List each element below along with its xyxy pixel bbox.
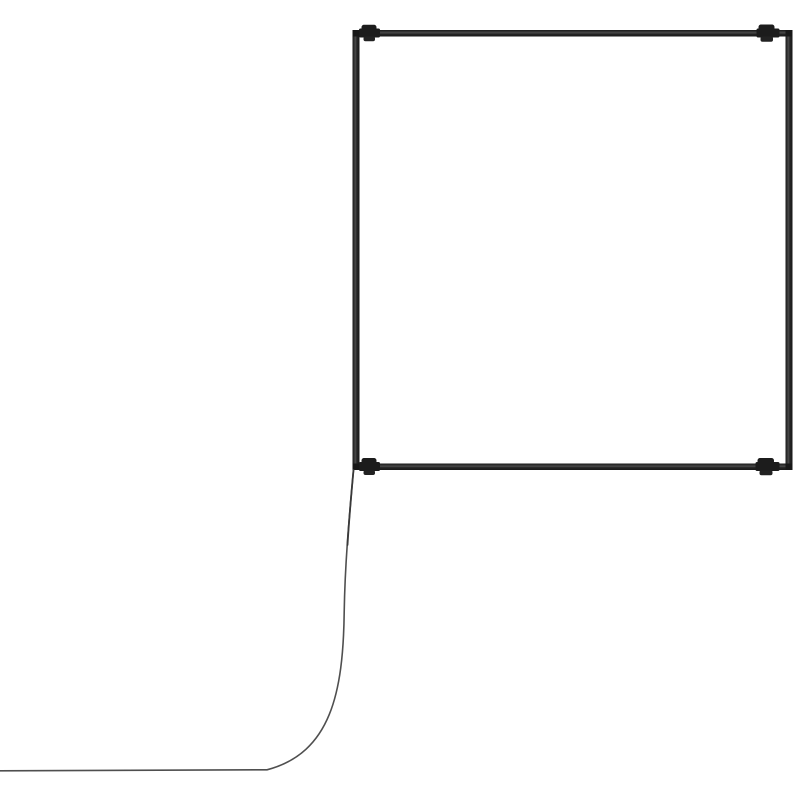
connector-lower-lug [761,37,774,42]
corner-connector-bottom-right [756,458,780,475]
product-render [0,0,800,800]
connector-lower-lug [364,37,376,42]
corner-connector-bottom-left [359,458,380,475]
power-cable-exit-segment [348,470,354,545]
connector-upper-lug [362,25,377,31]
frame-corner-bottom-left [353,464,360,471]
power-cable [0,470,354,771]
corner-connector-top-left [359,25,380,42]
connector-lower-lug [364,470,376,475]
render-canvas [0,0,800,800]
frame-rail-left [353,30,360,470]
connector-lower-lug [760,470,773,475]
frame-rail-top [353,30,793,37]
frame-rail-right [786,30,793,470]
connector-upper-lug [758,458,775,464]
frame-corner-bottom-right [786,464,793,471]
frame-corner-top-right [786,30,793,37]
connector-upper-lug [362,458,377,464]
corner-connector-top-right [757,25,780,42]
frame-corner-top-left [353,30,360,37]
frame [353,30,793,470]
frame-rail-bottom [353,464,793,471]
connector-upper-lug [759,25,775,31]
